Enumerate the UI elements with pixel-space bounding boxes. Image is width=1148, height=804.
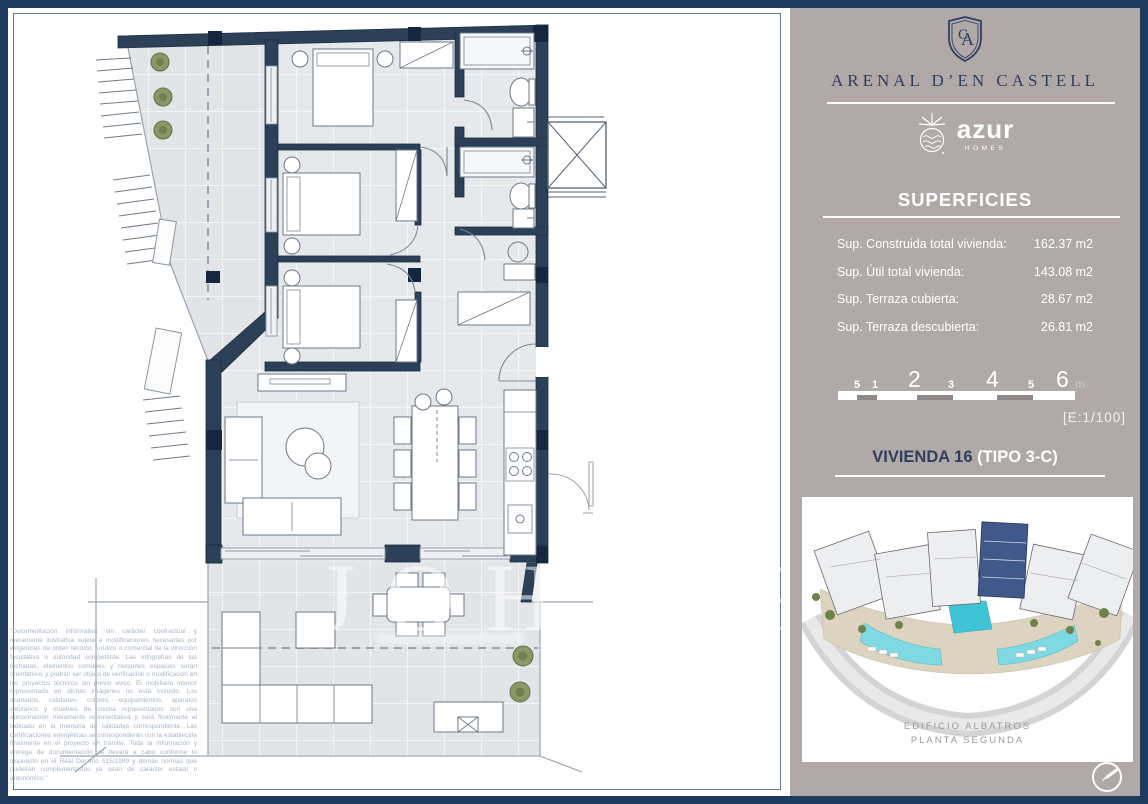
scale-mark: 1 (872, 379, 878, 391)
unit-type: (TIPO 3-C) (977, 448, 1058, 466)
scale-mark: 5 (854, 379, 860, 391)
scale-mark: 5 (1028, 379, 1034, 391)
scale-mark: 3 (948, 379, 954, 391)
row-value: 26.81 m2 (1041, 320, 1093, 334)
superficies-heading: SUPERFICIES (790, 189, 1140, 211)
developer-logo: azur HOMES (790, 111, 1140, 157)
project-title: ARENAL D’EN CASTELL (790, 71, 1140, 91)
table-row: Sup. Útil total vivienda: 143.08 m2 (837, 265, 1093, 293)
scale-mark: 2 (908, 368, 921, 391)
brochure-page: JOHN R "Documentación informativa sin ca… (0, 0, 1148, 804)
azur-palm-icon (916, 111, 948, 157)
divider-line (823, 216, 1120, 218)
developer-sub: HOMES (965, 145, 1006, 152)
superficies-table: Sup. Construida total vivienda: 162.37 m… (837, 237, 1093, 347)
scale-segment (857, 395, 877, 400)
row-value: 162.37 m2 (1034, 237, 1093, 251)
developer-name: azur (957, 116, 1014, 142)
siteplan-caption-floor: PLANTA SEGUNDA (802, 735, 1133, 746)
row-label: Sup. Útil total vivienda: (837, 265, 964, 279)
table-row: Sup. Terraza cubierta: 28.67 m2 (837, 292, 1093, 320)
info-sidebar: C A ARENAL D’EN CASTELL (790, 8, 1140, 796)
scale-segment (917, 395, 953, 400)
row-value: 28.67 m2 (1041, 292, 1093, 306)
watermark-tagline-blur (376, 633, 524, 644)
scale-mark: 6 (1056, 368, 1069, 391)
row-label: Sup. Terraza descubierta: (837, 320, 979, 334)
scale-unit: m (1075, 377, 1085, 391)
monogram-a: A (961, 29, 974, 49)
scale-mark: 4 (986, 368, 999, 391)
divider-line (827, 102, 1115, 104)
unit-name: VIVIENDA 16 (872, 448, 972, 466)
siteplan-card: EDIFICIO ALBATROS PLANTA SEGUNDA (802, 497, 1133, 762)
table-row: Sup. Terraza descubierta: 26.81 m2 (837, 320, 1093, 348)
scale-segment (997, 395, 1033, 400)
scale-bar: 5 1 2 3 4 5 6 m (790, 358, 1140, 410)
unit-title: VIVIENDA 16 (TIPO 3-C) (790, 448, 1140, 467)
divider-line (835, 475, 1105, 477)
siteplan-caption-building: EDIFICIO ALBATROS (802, 721, 1133, 732)
row-value: 143.08 m2 (1034, 265, 1093, 279)
north-compass-icon (1090, 760, 1124, 794)
row-label: Sup. Construida total vivienda: (837, 237, 1007, 251)
monogram-shield-icon: C A (947, 15, 983, 63)
table-row: Sup. Construida total vivienda: 162.37 m… (837, 237, 1093, 265)
legal-disclaimer: "Documentación informativa sin carácter … (10, 628, 197, 784)
row-label: Sup. Terraza cubierta: (837, 292, 959, 306)
scale-ratio: [E:1/100] (1063, 410, 1126, 425)
